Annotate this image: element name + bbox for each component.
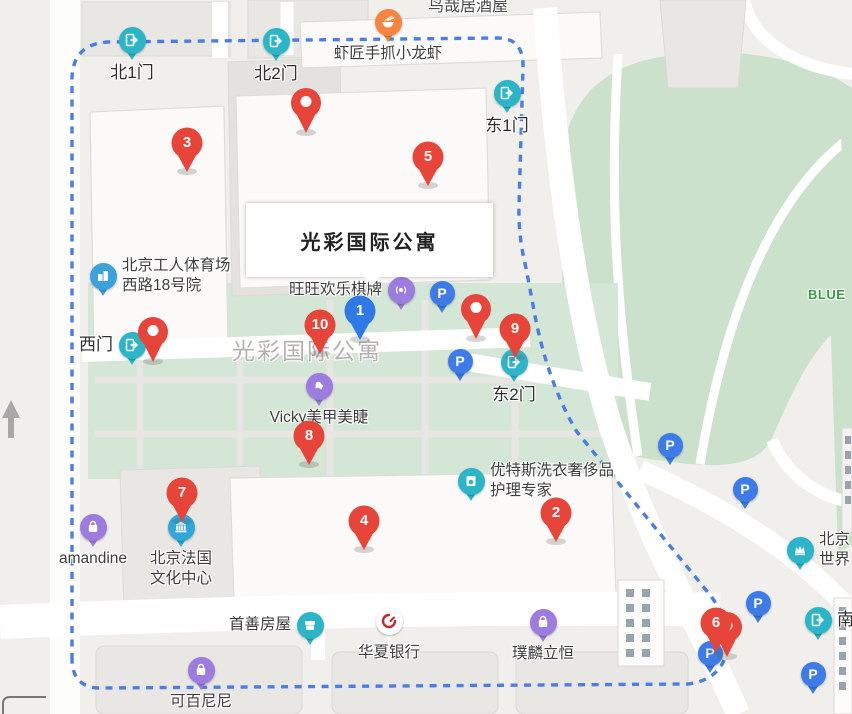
door-arrow-icon	[268, 33, 284, 49]
gate-label: 北1门	[110, 62, 153, 84]
parking-letter: P	[665, 437, 674, 453]
poi-glyph-icon	[193, 662, 209, 678]
parking-tail	[753, 615, 763, 623]
poi-label: 北京 世界	[819, 530, 850, 570]
izakaya-label: 鸟哉居酒屋	[428, 0, 508, 16]
door-arrow-icon	[499, 85, 515, 101]
poi-glyph-icon	[381, 613, 397, 629]
marker-number: 1	[343, 295, 377, 326]
marker-number: 9	[498, 313, 532, 344]
poi-glyph-icon	[95, 268, 111, 284]
map-canvas[interactable]: 鸟哉居酒屋 BLUE 光彩国际公寓 虾匠手抓小龙虾 北京工人体育场 西路18号院…	[0, 0, 852, 714]
poi-icon[interactable]	[80, 514, 107, 541]
pin-shape	[460, 292, 492, 340]
parking-icon[interactable]: P	[733, 477, 758, 502]
poi-glyph-icon	[792, 542, 808, 558]
door-arrow-icon	[810, 612, 826, 628]
poi-icon[interactable]	[458, 468, 485, 495]
info-window-title: 光彩国际公寓	[301, 226, 439, 255]
poi-glyph-icon	[380, 14, 396, 30]
parking-icon[interactable]: P	[746, 591, 771, 616]
poi-icon[interactable]	[297, 612, 324, 639]
marker-number: 8	[292, 420, 326, 451]
poi-glyph-icon	[302, 617, 318, 633]
parking-icon[interactable]: P	[658, 433, 683, 458]
poi-icon[interactable]	[388, 277, 415, 304]
parking-letter: P	[740, 481, 749, 497]
poi-label: 璞麟立恒	[512, 644, 574, 664]
gate-label: 东2门	[492, 384, 535, 406]
gate-icon[interactable]	[119, 27, 146, 54]
poi-glyph-icon	[311, 378, 327, 394]
poi-label: 优特斯洗衣奢侈品 护理专家	[490, 461, 614, 501]
green-strip-right-top	[840, 88, 852, 174]
marker-number: 5	[411, 141, 445, 172]
parking-tail	[665, 457, 675, 465]
poi-icon[interactable]	[306, 373, 333, 400]
poi-icon[interactable]	[530, 609, 557, 636]
poi-label: 北京法国 文化中心	[150, 549, 212, 589]
marker-number: 7	[165, 477, 199, 508]
parking-tail	[455, 373, 465, 381]
poi-icon[interactable]	[90, 263, 117, 290]
parking-tail	[437, 305, 447, 313]
gate-label: 东1门	[485, 115, 528, 137]
parking-tail	[740, 501, 750, 509]
poi-icon[interactable]	[376, 608, 403, 635]
gate-label: 西门	[79, 334, 113, 356]
info-window[interactable]: 光彩国际公寓	[246, 203, 493, 277]
marker-number: 3	[170, 127, 204, 158]
poi-label: amandine	[59, 549, 127, 569]
marker-number: 2	[539, 497, 573, 528]
poi-label: 可百尼尼	[170, 692, 232, 712]
parking-letter: P	[455, 353, 464, 369]
poi-label: 虾匠手抓小龙虾	[334, 44, 443, 64]
parking-icon[interactable]: P	[430, 281, 455, 306]
poi-icon[interactable]	[375, 9, 402, 36]
gate-icon[interactable]	[805, 607, 832, 634]
poi-icon[interactable]	[188, 657, 215, 684]
poi-glyph-icon	[393, 282, 409, 298]
marker-number: 6	[699, 607, 733, 638]
parking-letter: P	[808, 666, 817, 682]
pin-shape	[290, 86, 322, 134]
park-name-label: BLUE	[808, 287, 845, 302]
gate-label: 南	[837, 609, 852, 631]
poi-glyph-icon	[85, 519, 101, 535]
parking-icon[interactable]: P	[801, 662, 826, 687]
poi-label: 华夏银行	[358, 643, 420, 663]
gate-label: 北2门	[254, 63, 297, 85]
marker-number: 4	[347, 505, 381, 536]
parking-tail	[705, 665, 715, 673]
door-arrow-icon	[124, 32, 140, 48]
poi-glyph-icon	[463, 473, 479, 489]
gate-icon[interactable]	[494, 80, 521, 107]
poi-label: 北京工人体育场 西路18号院	[122, 256, 231, 296]
gate-icon[interactable]	[263, 28, 290, 55]
poi-label: 首善房屋	[229, 615, 291, 635]
pin-shape	[137, 315, 169, 363]
parking-letter: P	[437, 285, 446, 301]
parking-tail	[808, 686, 818, 694]
marker-number: 10	[303, 309, 337, 340]
parking-letter: P	[753, 595, 762, 611]
poi-icon[interactable]	[787, 537, 814, 564]
parking-icon[interactable]: P	[448, 349, 473, 374]
poi-glyph-icon	[535, 614, 551, 630]
